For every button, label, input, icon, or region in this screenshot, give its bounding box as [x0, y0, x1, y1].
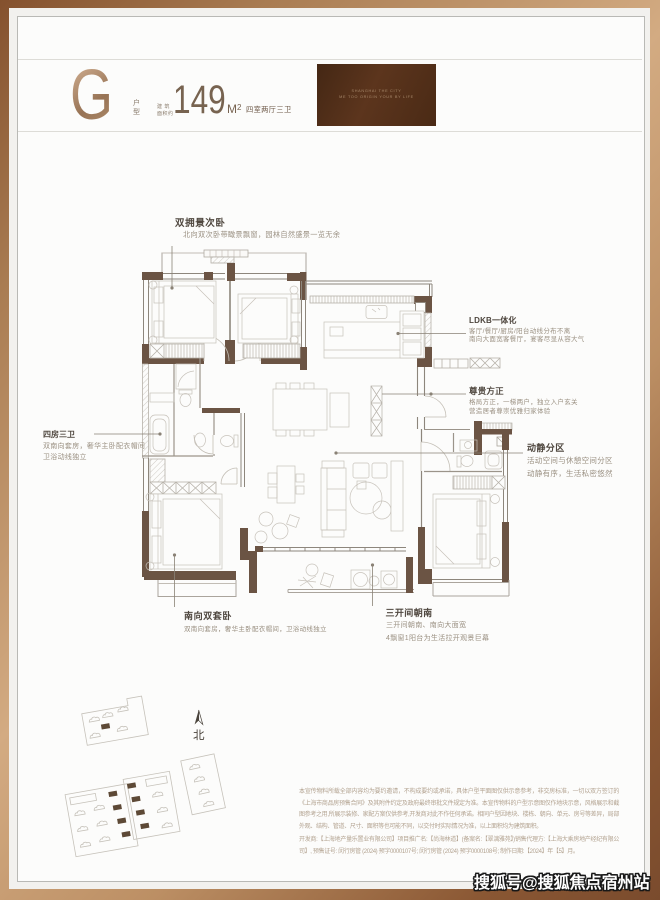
svg-text:北: 北	[193, 729, 205, 742]
